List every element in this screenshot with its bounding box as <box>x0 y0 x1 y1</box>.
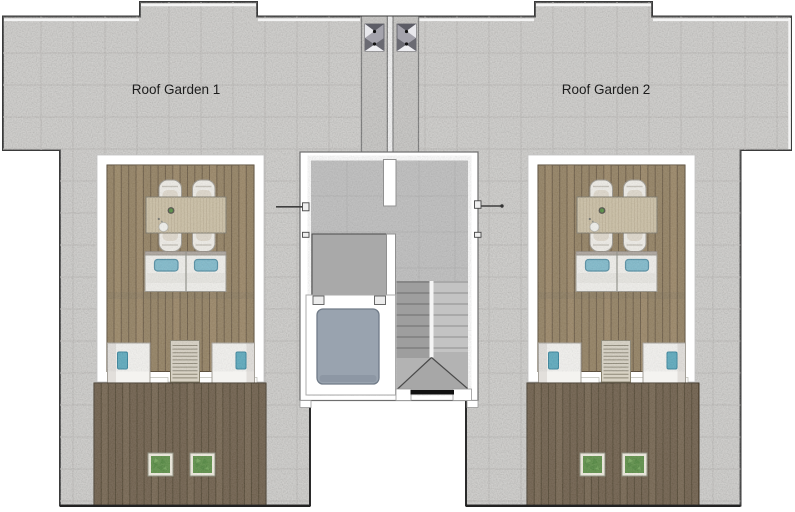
svg-text:Roof Garden 1: Roof Garden 1 <box>132 82 221 97</box>
svg-text:Roof Garden 2: Roof Garden 2 <box>562 82 651 97</box>
